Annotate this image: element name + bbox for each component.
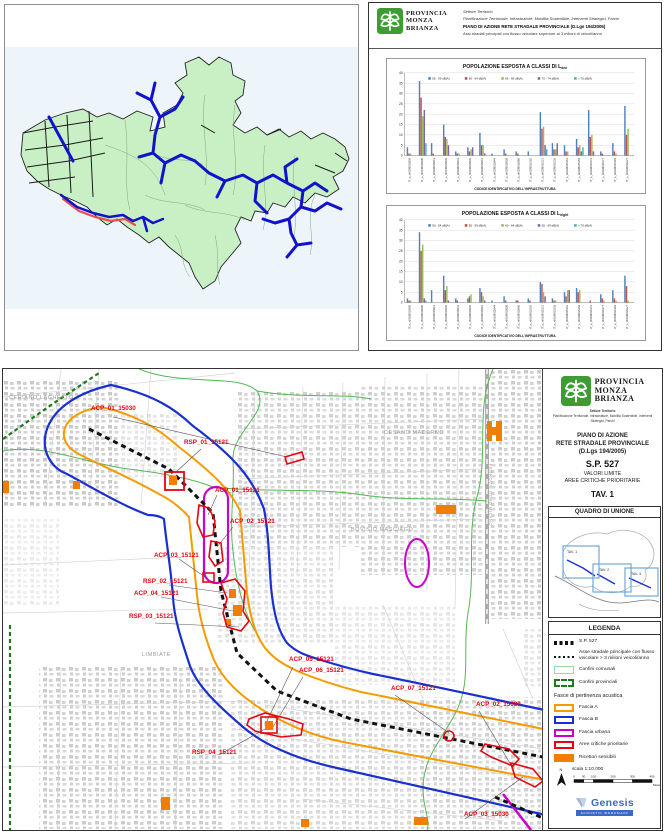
sp527-line-symbol <box>554 641 574 645</box>
svg-text:IT_a_rd0108015193: IT_a_rd0108015193 <box>613 305 617 329</box>
credits-tagline: ACOUSTIC WORKSHOP <box>576 810 634 816</box>
svg-text:40: 40 <box>399 218 403 222</box>
sidebar-caption: Settore Territorio Pianificazione Territ… <box>543 409 662 423</box>
provincia-logo: PROVINCIAMONZABRIANZA <box>377 8 463 34</box>
acp-label: ACP_06_15121 <box>299 667 344 674</box>
subtitle-1: VALORI LIMITE <box>543 471 662 477</box>
svg-text:IT_a_rd0108015030: IT_a_rd0108015030 <box>444 305 448 329</box>
svg-text:50 - 54 dB(A): 50 - 54 dB(A) <box>432 224 449 228</box>
svg-text:IT_a_rd0108015173: IT_a_rd0108015173 <box>589 158 593 182</box>
legend-box: LEGENDA S.P. 527 Asse stradale principal… <box>548 621 661 829</box>
svg-text:POPOLAZIONE ESPOSTA A CLASSI D: POPOLAZIONE ESPOSTA A CLASSI DI Lden <box>463 64 567 70</box>
svg-text:65 - 69 dB(A): 65 - 69 dB(A) <box>542 224 559 228</box>
svg-text:0: 0 <box>573 774 575 778</box>
svg-text:IT_a_rd0108015154: IT_a_rd0108015154 <box>577 305 581 329</box>
svg-text:50: 50 <box>582 774 586 778</box>
svg-text:POPOLAZIONE ESPOSTA A CLASSI D: POPOLAZIONE ESPOSTA A CLASSI DI Lnight <box>462 211 569 217</box>
chart-lnight: POPOLAZIONE ESPOSTA A CLASSI DI Lnight05… <box>386 205 646 341</box>
svg-text:70 - 74 dB(A): 70 - 74 dB(A) <box>542 77 559 81</box>
legend-item-asse: Asse stradale principale con flusso veic… <box>554 650 655 662</box>
svg-text:CODICE IDENTIFICATIVO DELL'INF: CODICE IDENTIFICATIVO DELL'INFRASTRUTTUR… <box>474 187 556 191</box>
svg-text:30: 30 <box>399 92 403 96</box>
svg-text:55 - 59 dB(A): 55 - 59 dB(A) <box>469 224 486 228</box>
svg-text:IT_a_rd0108015013: IT_a_rd0108015013 <box>432 158 436 182</box>
acp-label: ACP_02_15121 <box>230 518 275 525</box>
svg-text:20: 20 <box>399 259 403 263</box>
svg-text:IT_a_rd0108015005: IT_a_rd0108015005 <box>408 305 412 329</box>
svg-text:15: 15 <box>399 270 403 274</box>
credits-name: Genesis <box>591 797 634 809</box>
svg-text:> 75 dB(A): > 75 dB(A) <box>578 77 592 81</box>
svg-text:40: 40 <box>399 71 403 75</box>
fascia-a-symbol <box>554 704 574 712</box>
svg-text:60 - 64 dB(A): 60 - 64 dB(A) <box>505 224 522 228</box>
svg-text:IT_a_rd0108015060: IT_a_rd0108015060 <box>516 305 520 329</box>
rsp-label: RSP_01_15121 <box>184 439 228 446</box>
report-panel: PROVINCIAMONZABRIANZA Settore Territorio… <box>368 2 662 351</box>
svg-text:IT_a_rd0108015151: IT_a_rd0108015151 <box>565 305 569 329</box>
svg-text:IT_a_rd0108015135: IT_a_rd0108015135 <box>553 158 557 182</box>
svg-text:IT_a_rd0108015227: IT_a_rd0108015227 <box>625 158 629 182</box>
provincia-tree-icon <box>377 8 403 34</box>
svg-text:CODICE IDENTIFICATIVO DELL'INF: CODICE IDENTIFICATIVO DELL'INFRASTRUTTUR… <box>474 334 556 338</box>
report-header-text: Settore Territorio Pianificazione Territ… <box>463 8 653 37</box>
svg-text:IT_a_rd0108015058: IT_a_rd0108015058 <box>504 158 508 182</box>
svg-text:IT_a_rd0108015102: IT_a_rd0108015102 <box>529 158 533 182</box>
provincial-border-symbol <box>554 679 574 687</box>
road-number: S.P. 527 <box>543 459 662 469</box>
svg-text:5: 5 <box>401 143 403 147</box>
municipality-label: CESANO MADERNO <box>384 430 444 436</box>
svg-text:100: 100 <box>591 774 596 778</box>
svg-text:IT_a_rd0108015006: IT_a_rd0108015006 <box>420 158 424 182</box>
plan-sheet-page: PROVINCIAMONZABRIANZA Settore Territorio… <box>0 0 666 833</box>
scale-label: scala 1:10.000 <box>572 767 660 772</box>
svg-text:IT_a_rd0108015121: IT_a_rd0108015121 <box>541 158 545 182</box>
svg-text:> 70 dB(A): > 70 dB(A) <box>578 224 592 228</box>
acp-label: ACP_01_15121 <box>215 487 260 494</box>
plan-subtitle-line: Assi stradali principali con flusso veic… <box>463 31 653 38</box>
svg-text:300: 300 <box>630 774 635 778</box>
chart-lnight-svg: POPOLAZIONE ESPOSTA A CLASSI DI Lnight05… <box>387 206 645 340</box>
rsp-label: RSP_02_15121 <box>143 578 187 585</box>
svg-text:IT_a_rd0108015060: IT_a_rd0108015060 <box>516 158 520 182</box>
svg-text:IT_a_rd0108015035: IT_a_rd0108015035 <box>468 305 472 329</box>
svg-text:IT_a_rd0108015041: IT_a_rd0108015041 <box>480 305 484 329</box>
sheet-number: TAV. 1 <box>543 490 662 499</box>
svg-text:35: 35 <box>399 81 403 85</box>
railway-label: FERROVIE NORD MILANO <box>488 464 493 526</box>
province-overview-map <box>5 5 358 350</box>
provincia-tree-icon <box>561 376 591 406</box>
legend-item-confini-provinciali: Confini provinciali <box>554 679 655 687</box>
svg-text:30: 30 <box>399 239 403 243</box>
svg-text:IT_a_rd0108015031: IT_a_rd0108015031 <box>456 158 460 182</box>
rsp-label: RSP_03_15121 <box>129 613 173 620</box>
svg-text:IT_a_rd0108015006: IT_a_rd0108015006 <box>420 305 424 329</box>
svg-text:IT_a_rd0108015013: IT_a_rd0108015013 <box>432 305 436 329</box>
legend-item-fascia-b: Fascia B <box>554 716 655 724</box>
svg-text:IT_a_rd0108015031: IT_a_rd0108015031 <box>456 305 460 329</box>
svg-text:IT_a_rd0108015173: IT_a_rd0108015173 <box>589 305 593 329</box>
svg-text:IT_a_rd0108015041: IT_a_rd0108015041 <box>480 158 484 182</box>
svg-text:5: 5 <box>401 290 403 294</box>
north-arrow-icon <box>556 772 567 787</box>
chart-lden: POPOLAZIONE ESPOSTA A CLASSI DI Lden0510… <box>386 58 646 194</box>
acp-label: ACP_03_15030 <box>464 811 509 818</box>
svg-text:0: 0 <box>401 301 403 305</box>
ricettori-symbol <box>554 754 574 762</box>
main-axis-line-symbol <box>554 656 574 658</box>
svg-text:IT_a_rd0108015151: IT_a_rd0108015151 <box>565 158 569 182</box>
legend-item-fascia-urbana: Fascia urbana <box>554 729 655 737</box>
acp-label: ACP_05_15121 <box>289 656 334 663</box>
province-overview-panel <box>4 4 359 351</box>
acp-label: ACP_04_15121 <box>134 590 179 597</box>
svg-text:25: 25 <box>399 102 403 106</box>
quadro-map: TAV. 1 TAV. 2 TAV. 3 <box>549 518 660 615</box>
north-arrow: N <box>554 767 568 792</box>
svg-text:IT_a_rd0108015177: IT_a_rd0108015177 <box>601 158 605 182</box>
scale-bar: 0 50 100 200 300 400 <box>572 773 660 787</box>
tav1-label: TAV. 1 <box>567 550 577 554</box>
genesis-v-icon <box>575 797 591 809</box>
provincia-logo-text: PROVINCIAMONZABRIANZA <box>406 10 447 31</box>
plan-title-line: PIANO DI AZIONE RETE STRADALE PROVINCIAL… <box>463 23 653 31</box>
scale-bar-block: scala 1:10.000 0 50 100 200 300 400 <box>568 767 660 792</box>
report-header: PROVINCIAMONZABRIANZA Settore Territorio… <box>369 3 661 49</box>
municipality-label: BOVISIO MASCIAGO <box>351 527 413 533</box>
legend-title: LEGENDA <box>549 622 660 635</box>
credits: Genesis ACOUSTIC WORKSHOP <box>554 797 655 816</box>
svg-text:IT_a_rd0108015177: IT_a_rd0108015177 <box>601 305 605 329</box>
svg-text:IT_a_rd0108015121: IT_a_rd0108015121 <box>541 305 545 329</box>
legend-item-ricettori: Ricettori sensibili <box>554 754 655 762</box>
provincia-logo-text: PROVINCIAMONZABRIANZA <box>595 378 645 403</box>
svg-text:10: 10 <box>399 280 403 284</box>
legend-item-aree-critiche: Aree critiche prioritarie <box>554 741 655 749</box>
fascia-urbana-symbol <box>554 729 574 737</box>
svg-text:IT_a_rd0108015227: IT_a_rd0108015227 <box>625 305 629 329</box>
legend-item-fascia-a: Fascia A <box>554 704 655 712</box>
scale-area: N scala 1:10.000 0 50 100 200 <box>554 767 655 792</box>
chart-lden-svg: POPOLAZIONE ESPOSTA A CLASSI DI Lden0510… <box>387 59 645 193</box>
svg-text:10: 10 <box>399 133 403 137</box>
fascia-b-symbol <box>554 716 574 724</box>
subtitle-2: AREE CRITICHE PRIORITARIE <box>543 478 662 484</box>
detail-map-panel: ACP_01_15030 RSP_01_15121 ACP_01_15121 A… <box>2 368 663 831</box>
svg-text:0: 0 <box>401 154 403 158</box>
department-line: Pianificazione Territoriale, Infrastrutt… <box>463 16 653 23</box>
legend-item-sp527: S.P. 527 <box>554 639 655 645</box>
acp-label: ACP_03_15121 <box>154 552 199 559</box>
svg-text:IT_a_rd0108015058: IT_a_rd0108015058 <box>504 305 508 329</box>
municipal-border-symbol <box>554 666 574 674</box>
tav3-label: TAV. 3 <box>631 572 641 576</box>
svg-text:IT_a_rd0108015154: IT_a_rd0108015154 <box>577 158 581 182</box>
plan-title: PIANO DI AZIONE RETE STRADALE PROVINCIAL… <box>543 432 662 456</box>
municipality-label: LIMBIATE <box>142 652 171 658</box>
svg-text:IT_a_rd0108015044: IT_a_rd0108015044 <box>492 158 496 182</box>
svg-text:60 - 64 dB(A): 60 - 64 dB(A) <box>469 77 486 81</box>
rsp-label: RSP_04_15121 <box>192 749 236 756</box>
svg-text:25: 25 <box>399 249 403 253</box>
svg-text:35: 35 <box>399 228 403 232</box>
svg-text:15: 15 <box>399 123 403 127</box>
svg-text:IT_a_rd0108015193: IT_a_rd0108015193 <box>613 158 617 182</box>
svg-text:IT_a_rd0108015102: IT_a_rd0108015102 <box>529 305 533 329</box>
svg-text:400: 400 <box>649 774 654 778</box>
svg-text:IT_a_rd0108015035: IT_a_rd0108015035 <box>468 158 472 182</box>
fasce-header: Fasce di pertinenza acustica <box>554 693 655 699</box>
svg-text:65 - 69 dB(A): 65 - 69 dB(A) <box>505 77 522 81</box>
svg-text:IT_a_rd0108015135: IT_a_rd0108015135 <box>553 305 557 329</box>
acp-label: ACP_02_15030 <box>476 701 521 708</box>
svg-text:IT_a_rd0108015030: IT_a_rd0108015030 <box>444 158 448 182</box>
svg-text:200: 200 <box>610 774 615 778</box>
map-sheet-sidebar: PROVINCIAMONZABRIANZA Settore Territorio… <box>542 369 662 830</box>
sector-line: Settore Territorio <box>463 9 653 16</box>
legend-item-confini-comunali: Confini comunali <box>554 666 655 674</box>
svg-text:IT_a_rd0108015005: IT_a_rd0108015005 <box>408 158 412 182</box>
aree-critiche-symbol <box>554 741 574 749</box>
scale-units: Meters <box>653 783 660 787</box>
tav2-label: TAV. 2 <box>599 568 609 572</box>
quadro-title: QUADRO DI UNIONE <box>549 507 660 518</box>
svg-text:IT_a_rd0108015044: IT_a_rd0108015044 <box>492 305 496 329</box>
acp-label: ACP_07_15121 <box>391 685 436 692</box>
quadro-di-unione: QUADRO DI UNIONE TAV. 1 TAV. 2 TAV. 3 <box>548 506 661 618</box>
svg-text:20: 20 <box>399 112 403 116</box>
acp-label: ACP_01_15030 <box>91 405 136 412</box>
municipality-label: CERIANO LAGHETTO <box>9 395 74 401</box>
provincia-logo: PROVINCIAMONZABRIANZA <box>543 376 662 406</box>
svg-text:55 - 59 dB(A): 55 - 59 dB(A) <box>432 77 449 81</box>
